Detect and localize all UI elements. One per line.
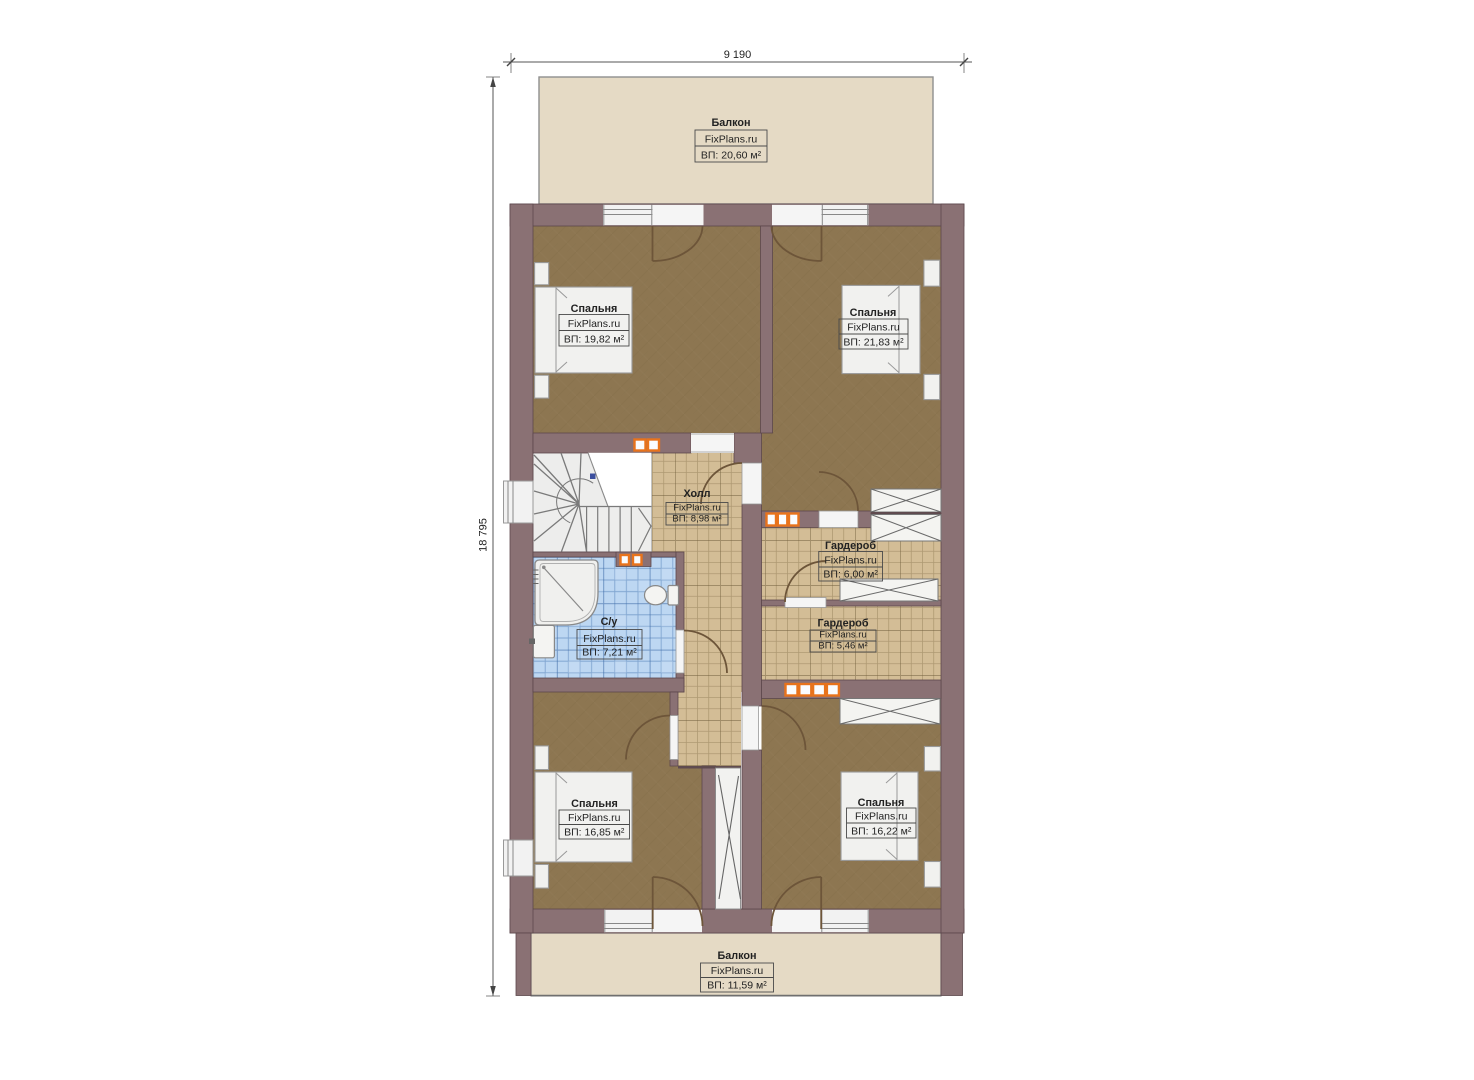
svg-text:ВП: 19,82 м²: ВП: 19,82 м² (564, 334, 625, 346)
svg-text:Балкон: Балкон (717, 950, 756, 962)
svg-text:FixPlans.ru: FixPlans.ru (855, 811, 908, 823)
svg-text:Гардероб: Гардероб (817, 618, 868, 630)
svg-text:ВП: 16,85 м²: ВП: 16,85 м² (564, 827, 625, 839)
svg-text:Спальня: Спальня (858, 797, 905, 809)
svg-text:Гардероб: Гардероб (825, 540, 876, 552)
svg-text:FixPlans.ru: FixPlans.ru (705, 134, 758, 146)
svg-text:18 795: 18 795 (478, 518, 490, 552)
svg-text:FixPlans.ru: FixPlans.ru (847, 322, 900, 334)
svg-text:FixPlans.ru: FixPlans.ru (819, 630, 867, 641)
svg-text:FixPlans.ru: FixPlans.ru (711, 965, 764, 977)
svg-text:FixPlans.ru: FixPlans.ru (673, 503, 721, 514)
svg-text:Спальня: Спальня (571, 303, 618, 315)
svg-text:ВП: 11,59 м²: ВП: 11,59 м² (707, 980, 767, 992)
svg-text:9 190: 9 190 (724, 49, 752, 61)
svg-text:ВП: 7,21 м²: ВП: 7,21 м² (582, 647, 637, 659)
svg-text:ВП: 5,46 м²: ВП: 5,46 м² (818, 641, 867, 652)
svg-text:Спальня: Спальня (571, 798, 618, 810)
svg-text:FixPlans.ru: FixPlans.ru (568, 318, 621, 330)
svg-text:С/у: С/у (601, 616, 618, 628)
svg-text:Спальня: Спальня (850, 307, 897, 319)
svg-text:FixPlans.ru: FixPlans.ru (583, 633, 636, 645)
svg-text:FixPlans.ru: FixPlans.ru (568, 812, 621, 824)
svg-text:Холл: Холл (683, 488, 710, 500)
svg-text:Балкон: Балкон (711, 117, 750, 129)
svg-text:FixPlans.ru: FixPlans.ru (824, 555, 877, 567)
svg-text:ВП: 16,22 м²: ВП: 16,22 м² (851, 826, 912, 838)
svg-text:ВП: 20,60 м²: ВП: 20,60 м² (701, 150, 762, 162)
svg-text:ВП: 6,00 м²: ВП: 6,00 м² (823, 569, 878, 581)
svg-text:ВП: 8,98 м²: ВП: 8,98 м² (672, 514, 721, 525)
svg-text:ВП: 21,83 м²: ВП: 21,83 м² (843, 337, 904, 349)
